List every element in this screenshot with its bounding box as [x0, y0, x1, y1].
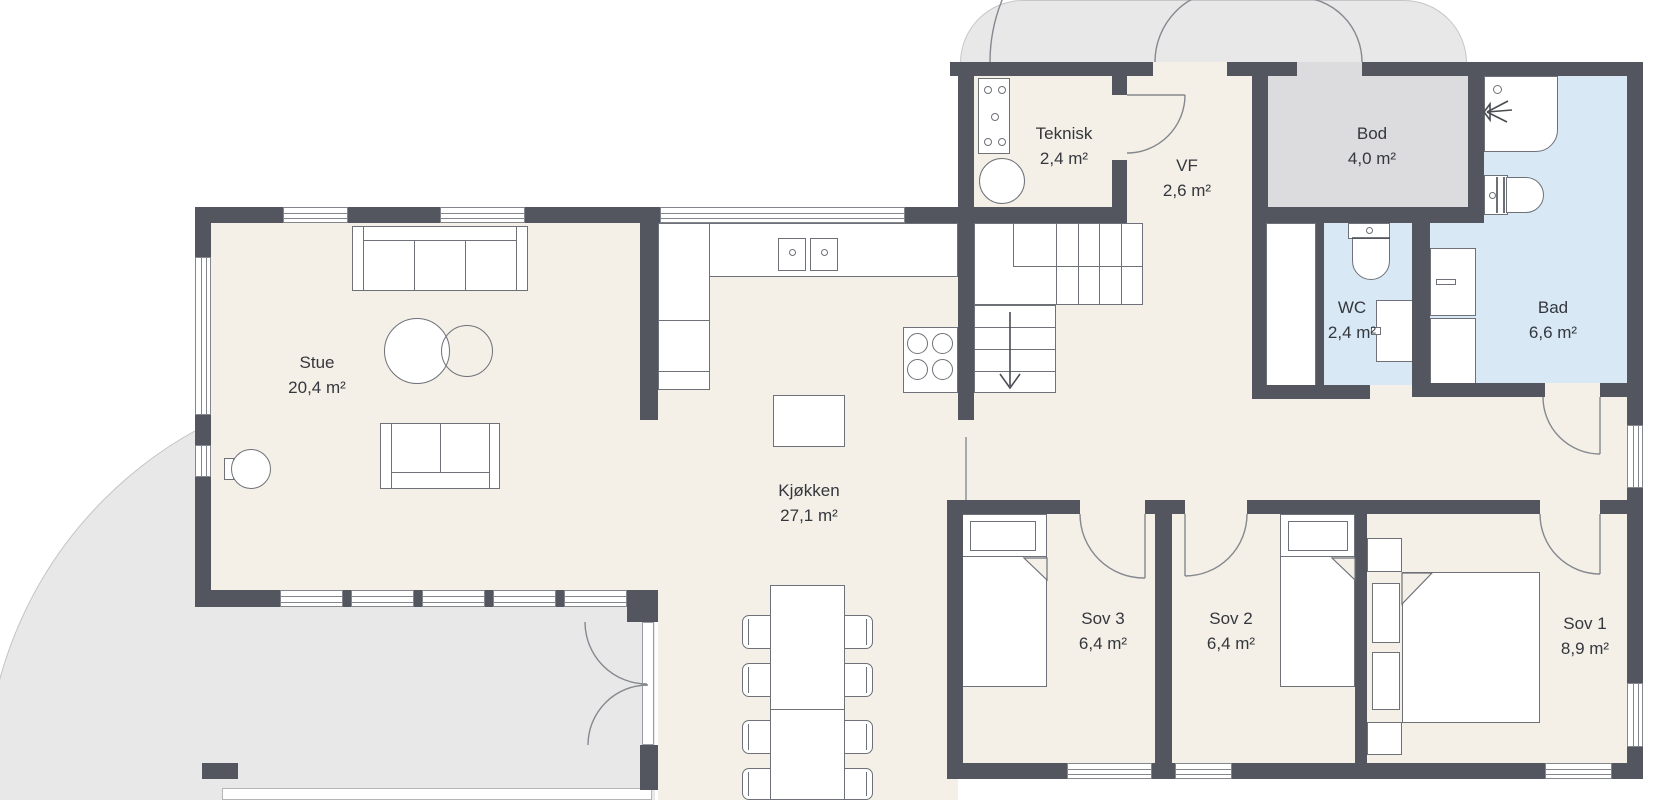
window	[351, 590, 414, 607]
wall-segment	[1362, 62, 1643, 76]
stair-tread	[1099, 223, 1100, 305]
wall-segment	[1155, 514, 1172, 763]
room-label-sov1: Sov 1 8,9 m²	[1561, 611, 1609, 661]
headboard-shelf1	[1367, 538, 1402, 572]
wall-segment	[1355, 514, 1367, 763]
armchair	[231, 449, 271, 489]
stair-tread	[1056, 223, 1057, 305]
dining-chair	[742, 768, 771, 800]
wall-segment	[1316, 221, 1324, 397]
room-area: 2,4 m²	[1328, 320, 1376, 345]
dining-chair	[742, 615, 771, 649]
wall-segment	[947, 500, 1080, 514]
washing-machine-handle	[1436, 279, 1456, 285]
room-area: 2,4 m²	[1036, 146, 1093, 171]
room-name: Bad	[1529, 295, 1577, 320]
counter-shelf-line1	[658, 320, 710, 321]
panel-knob	[991, 113, 999, 121]
stair-landing-line	[1013, 223, 1014, 267]
room-label-sov2: Sov 2 6,4 m²	[1207, 606, 1255, 656]
room-label-sov3: Sov 3 6,4 m²	[1079, 606, 1127, 656]
room-name: VF	[1163, 153, 1211, 178]
window	[440, 207, 525, 223]
opening-teknisk-door	[1112, 95, 1127, 160]
dining-chair	[844, 768, 873, 800]
wall-segment	[1252, 223, 1266, 397]
room-area: 6,6 m²	[1529, 320, 1577, 345]
terrace-door-leaves	[642, 622, 654, 745]
stair-tread	[974, 327, 1056, 328]
terrace-post	[202, 763, 238, 779]
stair-tread	[974, 349, 1056, 350]
wall-segment	[1430, 383, 1545, 397]
blanket-line-sov3	[962, 556, 1047, 557]
wall-segment	[1150, 763, 1177, 779]
dining-chair	[844, 720, 873, 754]
stair-rail	[1013, 266, 1143, 267]
wall-segment	[947, 500, 963, 779]
wc-toilet-bowl	[1352, 238, 1390, 280]
wall-segment	[1627, 62, 1643, 779]
window	[283, 207, 348, 223]
wall-segment	[1252, 207, 1484, 223]
sofa-3seat-divider2	[465, 240, 466, 290]
wall-segment	[640, 207, 658, 420]
window	[195, 257, 211, 415]
bad-toilet-bowl	[1506, 177, 1544, 213]
wc-toilet-button	[1366, 227, 1373, 234]
wall-segment	[947, 763, 1067, 779]
dining-chair	[742, 720, 771, 754]
burner-1	[907, 333, 928, 354]
dining-chair	[844, 663, 873, 697]
bad-faucet-dot	[1493, 85, 1502, 94]
room-label-vf: VF 2,6 m²	[1163, 153, 1211, 203]
room-name: WC	[1328, 295, 1376, 320]
room-area: 6,4 m²	[1207, 631, 1255, 656]
sofa-2seat-armrest-left	[391, 423, 392, 488]
window	[660, 207, 905, 223]
window	[280, 590, 343, 607]
dining-table-join	[770, 709, 845, 710]
wall-segment	[1600, 500, 1643, 514]
sofa-3seat-divider1	[414, 240, 415, 290]
hall-wardrobe	[1266, 223, 1316, 387]
room-label-bod: Bod 4,0 m²	[1348, 121, 1396, 171]
panel-knob	[984, 138, 992, 146]
water-heater	[979, 158, 1025, 204]
burner-4	[932, 359, 953, 380]
kitchen-counter-left	[658, 223, 710, 390]
room-label-teknisk: Teknisk 2,4 m²	[1036, 121, 1093, 171]
burner-3	[907, 359, 928, 380]
window	[1627, 425, 1643, 488]
stair-tread	[1078, 223, 1079, 305]
sink-drain-right	[821, 249, 828, 256]
kitchen-island	[773, 395, 845, 447]
sofa-3seat-armrest-left	[363, 226, 364, 290]
dining-table	[770, 585, 845, 800]
bed-sov1	[1402, 572, 1540, 723]
room-area: 2,6 m²	[1163, 178, 1211, 203]
wall-segment	[1232, 763, 1545, 779]
window	[422, 590, 485, 607]
wall-segment	[1145, 500, 1185, 514]
room-area: 4,0 m²	[1348, 146, 1396, 171]
wall-segment	[974, 207, 1127, 223]
headboard-shelf4	[1367, 722, 1402, 755]
room-name: Stue	[288, 350, 346, 375]
window	[1067, 763, 1152, 779]
headboard-shelf2	[1372, 583, 1400, 643]
pillow-sov2	[1288, 521, 1348, 551]
window	[195, 445, 211, 477]
wall-segment	[1252, 385, 1370, 399]
room-label-stue: Stue 20,4 m²	[288, 350, 346, 400]
burner-2	[932, 333, 953, 354]
room-area: 27,1 m²	[778, 503, 839, 528]
terrace-bench	[222, 788, 652, 800]
stair-tread	[974, 371, 1056, 372]
pillow-sov3	[970, 521, 1036, 551]
opening-bad-door	[1545, 383, 1600, 397]
sofa-2seat-armrest-right	[489, 423, 490, 488]
wall-segment	[1600, 383, 1643, 397]
room-name: Sov 3	[1079, 606, 1127, 631]
sofa-2seat-back-line	[391, 472, 489, 473]
sofa-3seat-back-line	[363, 240, 516, 241]
room-area: 20,4 m²	[288, 375, 346, 400]
blanket-line-sov2	[1280, 556, 1355, 557]
opening-stue-kjokken	[640, 420, 658, 590]
wall-segment	[1412, 218, 1430, 397]
wall-segment	[950, 62, 1153, 76]
headboard-shelf3	[1372, 652, 1400, 710]
room-area: 6,4 m²	[1079, 631, 1127, 656]
floor-hall-right	[1252, 397, 1627, 514]
panel-knob	[998, 138, 1006, 146]
terrace-deck	[211, 600, 655, 800]
stair-tread	[1121, 223, 1122, 305]
dining-chair	[742, 663, 771, 697]
ceiling-change-line	[965, 437, 967, 500]
sink-drain-left	[789, 249, 796, 256]
room-name: Sov 2	[1207, 606, 1255, 631]
dryer	[1430, 318, 1476, 390]
window	[1175, 763, 1232, 779]
room-area: 8,9 m²	[1561, 636, 1609, 661]
wall-segment	[1612, 763, 1643, 779]
wall-segment	[640, 745, 658, 790]
room-label-wc: WC 2,4 m²	[1328, 295, 1376, 345]
bad-toilet-tank	[1484, 175, 1508, 215]
room-label-bad: Bad 6,6 m²	[1529, 295, 1577, 345]
window	[1627, 683, 1643, 747]
wall-segment	[627, 590, 658, 622]
counter-shelf-line2	[658, 371, 710, 372]
wall-segment	[1112, 76, 1127, 95]
dining-chair	[844, 615, 873, 649]
window	[1545, 763, 1612, 779]
opening-wc-door	[1370, 385, 1412, 399]
wall-segment	[958, 62, 974, 420]
entry-porch	[960, 0, 1467, 63]
sofa-3seat-armrest-right	[516, 226, 517, 290]
sofa-2seat-divider	[440, 423, 441, 472]
wc-door-leaf	[1376, 300, 1413, 362]
room-label-kjokken: Kjøkken 27,1 m²	[778, 478, 839, 528]
room-name: Sov 1	[1561, 611, 1609, 636]
panel-knob	[984, 86, 992, 94]
wall-segment	[1252, 62, 1268, 223]
window	[493, 590, 556, 607]
sofa-3seat	[352, 226, 528, 291]
panel-knob	[998, 86, 1006, 94]
room-name: Bod	[1348, 121, 1396, 146]
stairs-upper-run	[974, 223, 1143, 305]
floor-plan: Stue 20,4 m² Kjøkken 27,1 m² Teknisk 2,4…	[0, 0, 1670, 800]
room-name: Teknisk	[1036, 121, 1093, 146]
wall-segment	[1247, 500, 1540, 514]
coffee-table-small	[441, 325, 493, 377]
wall-segment	[1468, 62, 1484, 223]
room-name: Kjøkken	[778, 478, 839, 503]
bad-toilet-button	[1489, 192, 1496, 199]
window	[564, 590, 627, 607]
